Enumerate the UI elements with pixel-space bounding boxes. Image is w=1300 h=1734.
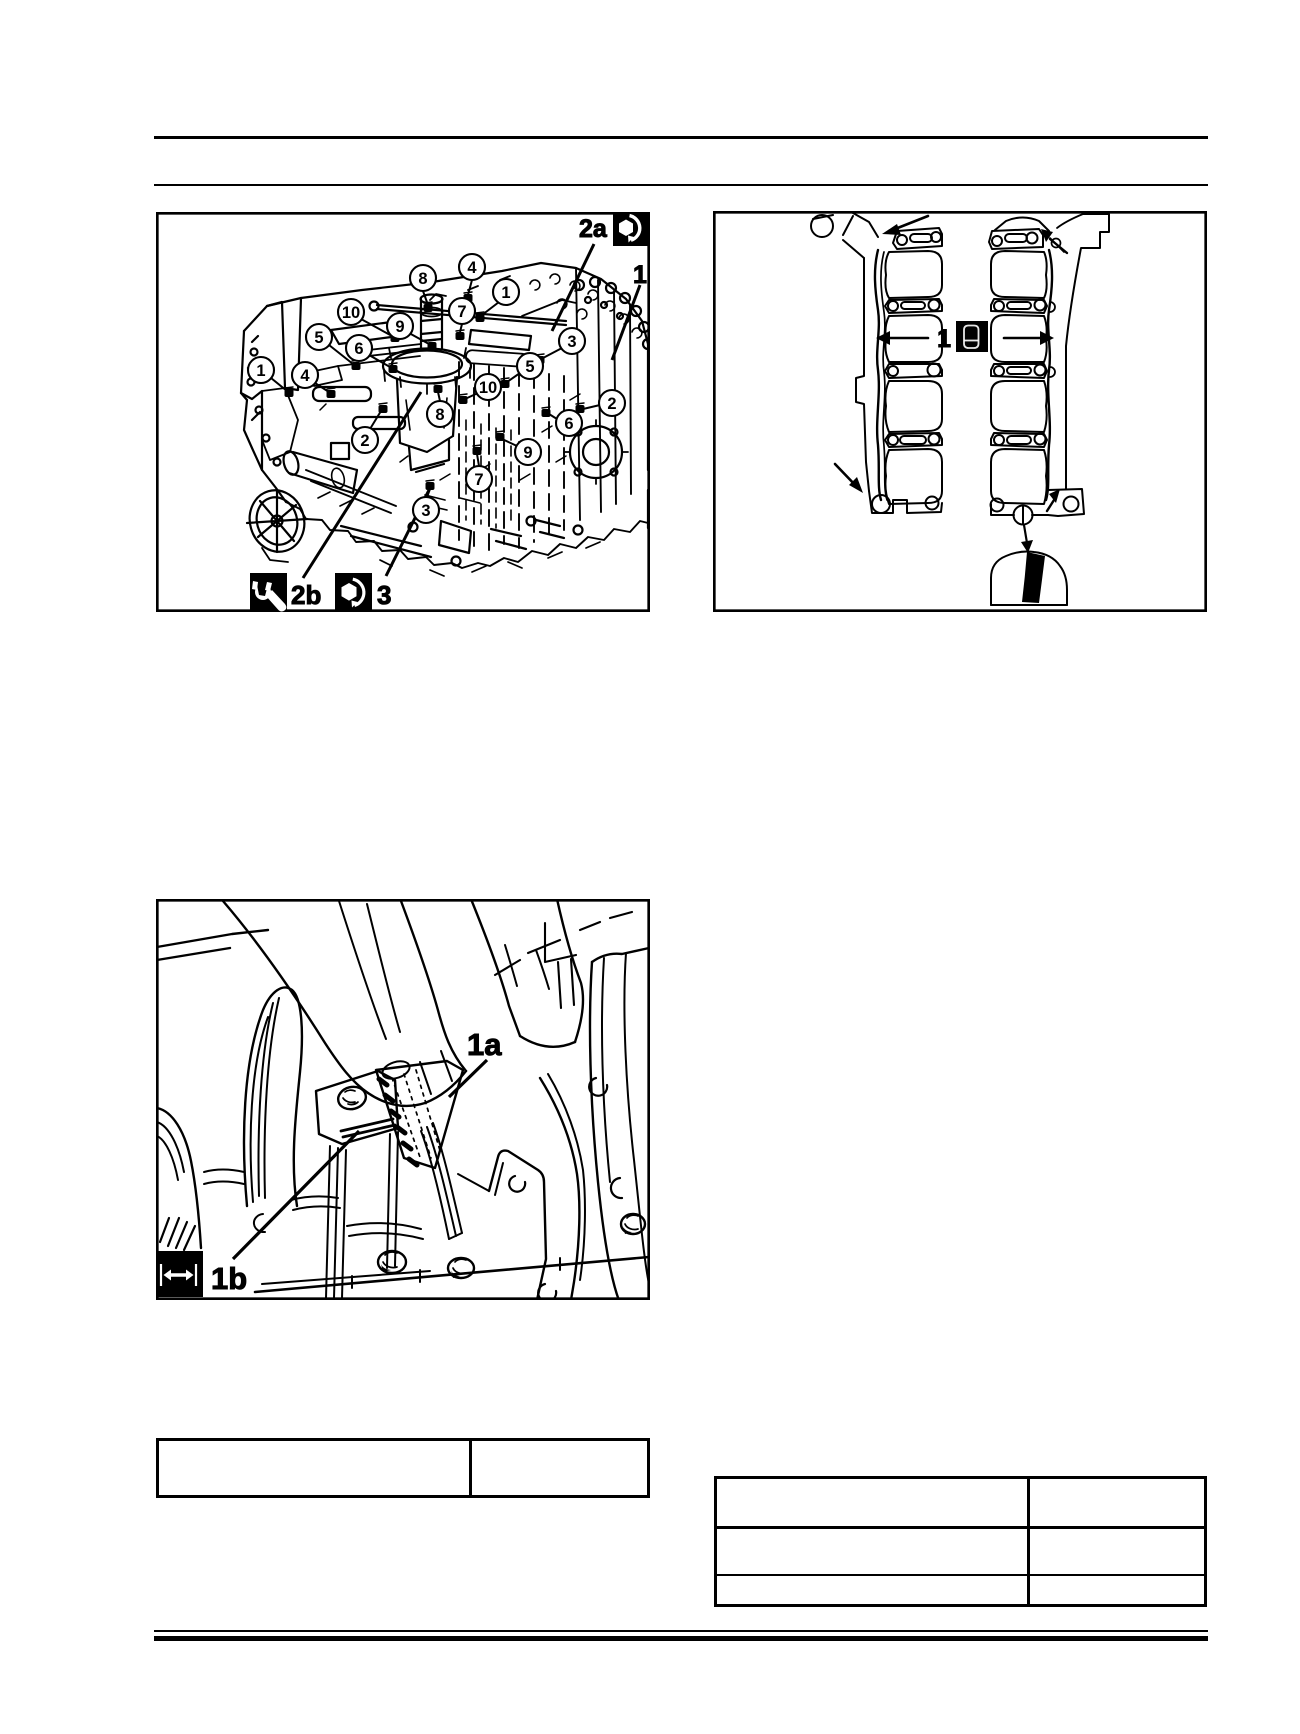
svg-text:4: 4: [300, 367, 310, 385]
svg-text:6: 6: [354, 340, 363, 358]
svg-text:9: 9: [395, 318, 404, 336]
svg-text:6: 6: [564, 415, 573, 433]
svg-text:7: 7: [474, 471, 483, 489]
svg-text:3: 3: [421, 502, 430, 520]
svg-text:2a: 2a: [579, 215, 608, 243]
svg-text:1b: 1b: [211, 1261, 247, 1296]
svg-text:1: 1: [633, 261, 647, 289]
svg-text:10: 10: [342, 304, 360, 322]
svg-text:2b: 2b: [291, 580, 321, 610]
svg-text:1: 1: [501, 284, 510, 302]
svg-text:5: 5: [314, 329, 323, 347]
svg-text:2: 2: [607, 395, 616, 413]
svg-text:10: 10: [479, 379, 497, 397]
svg-text:9: 9: [523, 444, 532, 462]
svg-text:7: 7: [457, 303, 466, 321]
svg-text:4: 4: [467, 259, 477, 277]
svg-text:1a: 1a: [467, 1027, 502, 1062]
svg-text:5: 5: [525, 358, 534, 376]
svg-text:8: 8: [418, 270, 427, 288]
svg-text:3: 3: [377, 580, 391, 610]
svg-text:2: 2: [360, 432, 369, 450]
svg-text:3: 3: [567, 333, 576, 351]
svg-text:1: 1: [256, 362, 265, 380]
svg-text:1: 1: [937, 325, 951, 353]
svg-text:8: 8: [435, 406, 444, 424]
